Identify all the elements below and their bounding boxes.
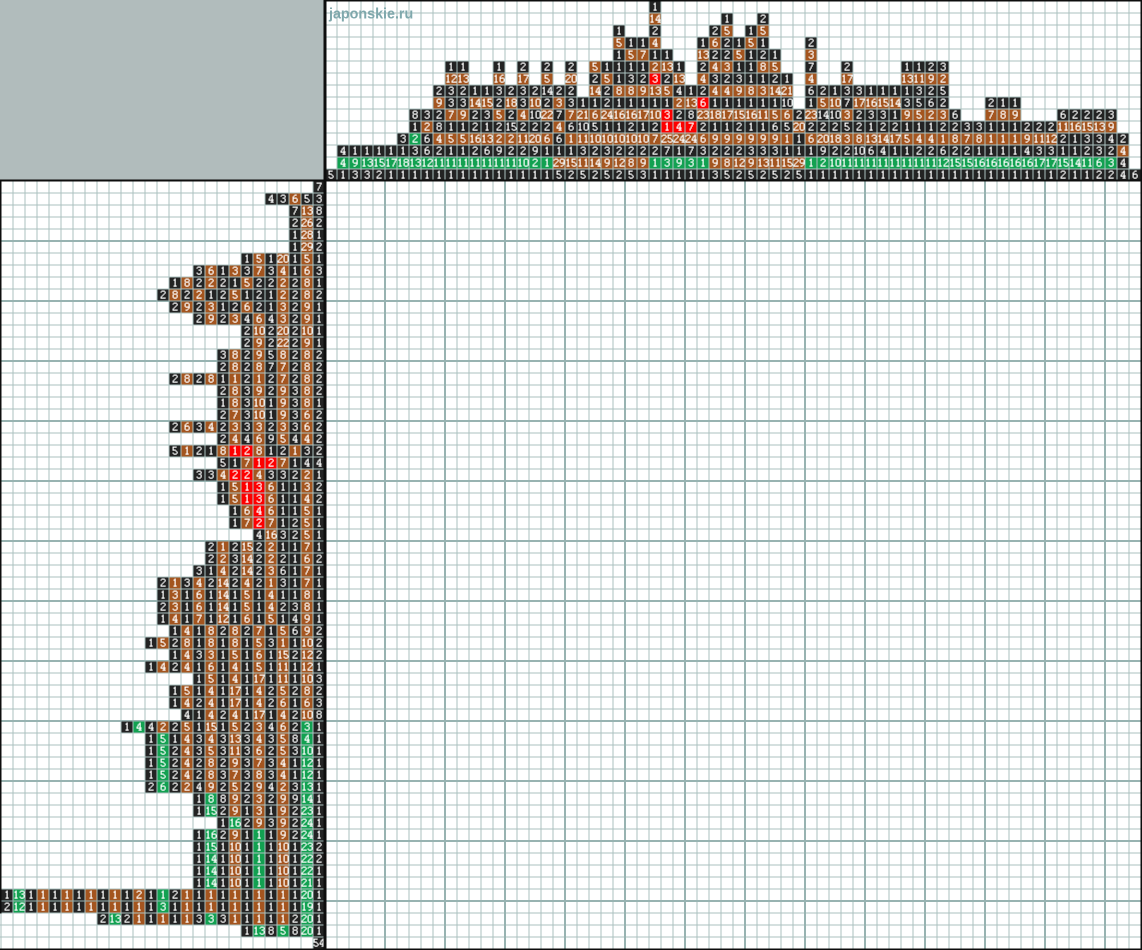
svg-text:japonskie.ru: japonskie.ru xyxy=(328,7,413,23)
